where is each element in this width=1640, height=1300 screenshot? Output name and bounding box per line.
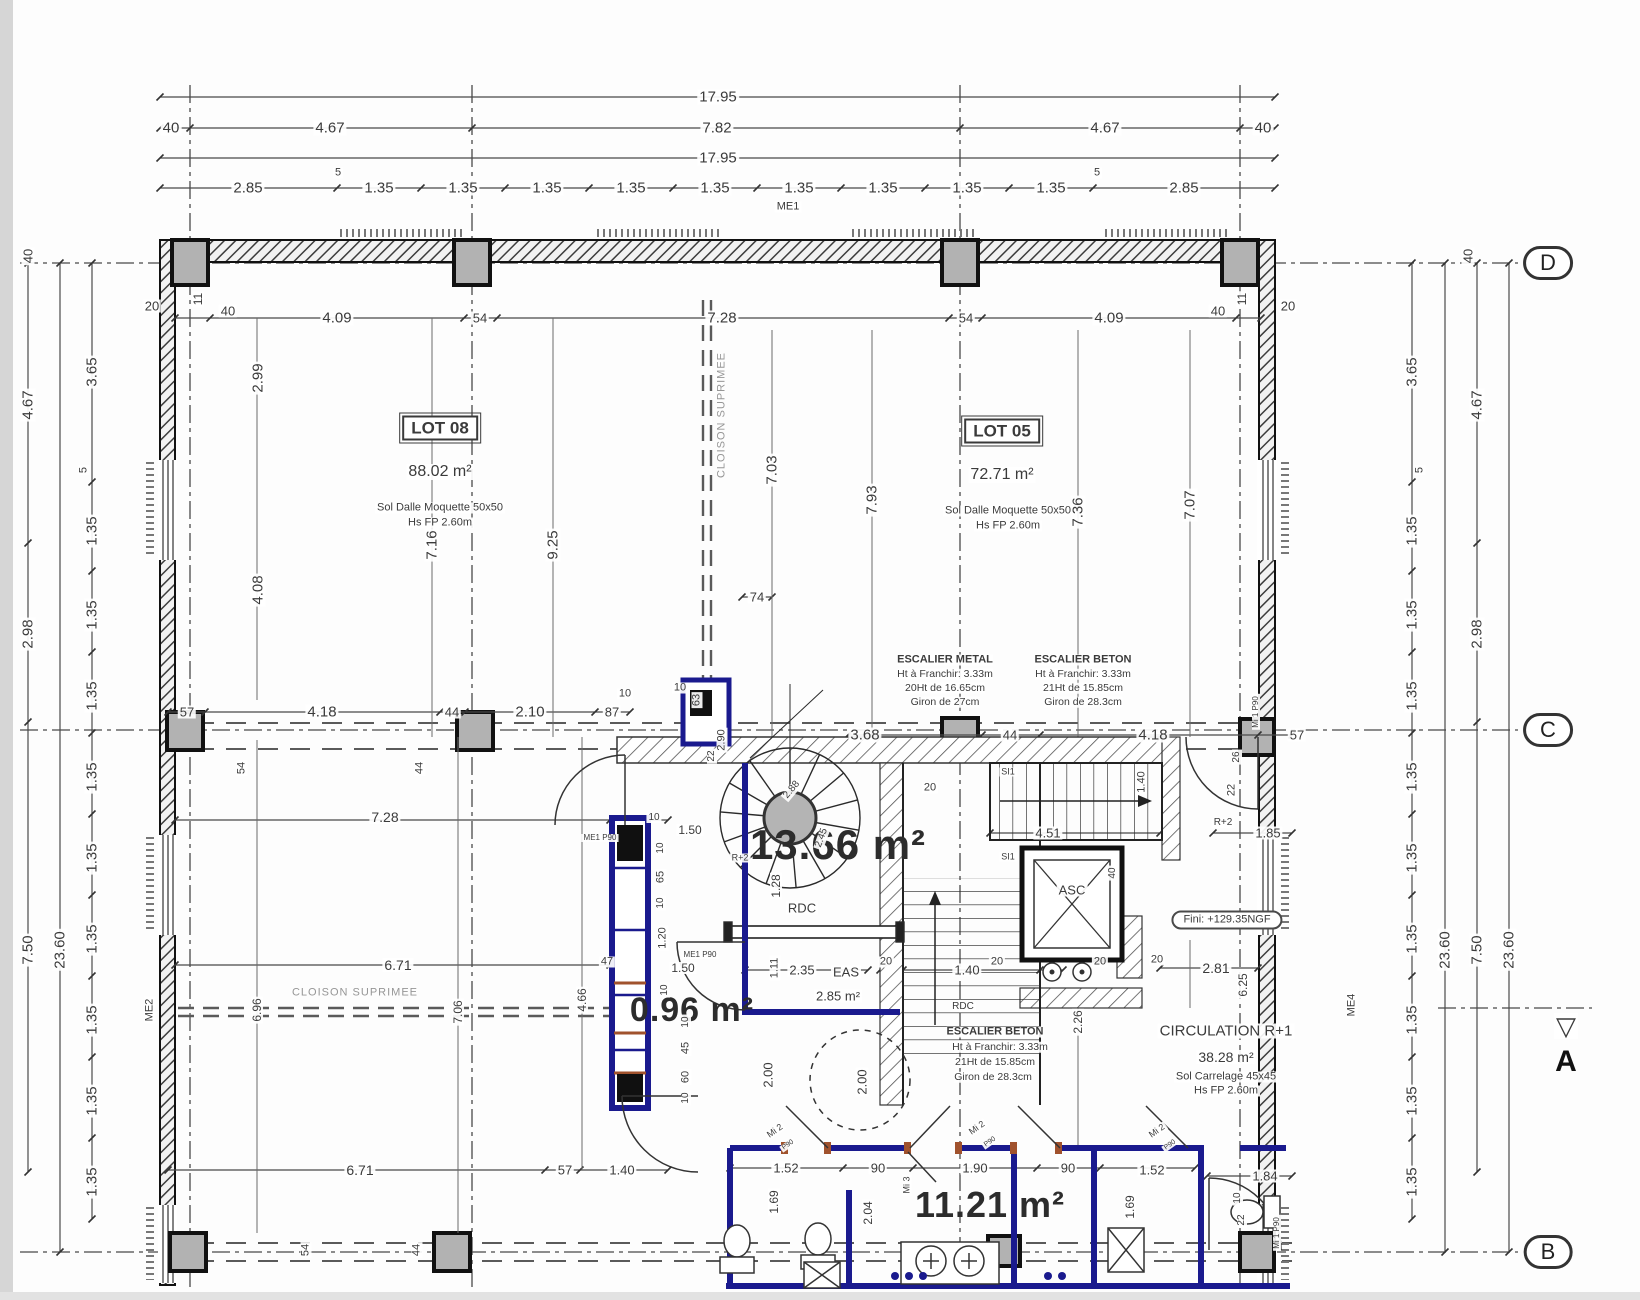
label-interior_dims-12: 2.10 <box>513 705 546 720</box>
label-corridor_dims-5: 6.71 <box>344 1163 375 1177</box>
label-annotations-7: Ht à Franchir: 3.33m <box>1035 669 1131 680</box>
label-header_dims-21: 20 <box>143 300 161 313</box>
room-lot05-area: 72.71 m² <box>968 467 1035 483</box>
label-interior_dims-54: 60 <box>681 1069 692 1085</box>
label-header_dims-19: 2.85 <box>1167 181 1200 196</box>
label-interior_dims-13: 87 <box>603 706 621 719</box>
label-annotations-5: Giron de 27cm <box>911 697 980 708</box>
label-header_dims-18: 5 <box>1092 168 1102 179</box>
label-annotations-21: ME1 P90 <box>682 951 719 959</box>
label-right_dims-16: 23.60 <box>1502 929 1517 971</box>
label-annotations-9: Giron de 28.3cm <box>1044 697 1122 708</box>
label-header_dims-26: 7.28 <box>705 311 738 326</box>
label-header_dims-22: 11 <box>192 291 204 307</box>
label-left_dims-5: 3.65 <box>85 355 100 388</box>
label-header_dims-29: 40 <box>1209 305 1227 318</box>
label-annotations-15: RDC <box>950 1002 976 1012</box>
label-left_dims-10: 1.35 <box>85 760 100 793</box>
label-annotations-13: Giron de 28.3cm <box>954 1072 1032 1083</box>
label-interior_dims-6: 7.07 <box>1183 488 1198 521</box>
label-left_dims-3: 7.50 <box>21 933 36 966</box>
label-annotations-20: ME1 P90 <box>582 834 619 842</box>
label-right_dims-4: 1.35 <box>1405 598 1420 631</box>
room-lot05-label: LOT 05 <box>964 419 1040 444</box>
label-sanitary_dims-0: 1.52 <box>771 1162 800 1175</box>
label-interior_dims-55: 10 <box>681 1014 691 1029</box>
label-interior_dims-44: 1.50 <box>676 824 703 836</box>
label-annotations-27: P90 <box>981 1134 999 1149</box>
label-annotations-18: SI1 <box>999 768 1017 777</box>
label-interior_dims-25: 2.90 <box>717 727 728 752</box>
label-header_dims-24: 4.09 <box>320 311 353 326</box>
label-header_dims-17: 1.35 <box>1034 181 1067 196</box>
label-sanitary_dims-5: 1.69 <box>768 1188 780 1215</box>
label-corridor_dims-3: 7.06 <box>452 998 464 1025</box>
grid-bubble-d: D <box>1523 246 1573 280</box>
label-left_dims-9: 1.35 <box>85 679 100 712</box>
label-right_dims-6: 1.35 <box>1405 760 1420 793</box>
label-sanitary_dims-4: 1.52 <box>1137 1164 1166 1177</box>
label-interior_dims-30: 40 <box>1108 865 1118 880</box>
label-interior_dims-19: 44 <box>1001 729 1019 742</box>
label-annotations-8: 21Ht de 15.85cm <box>1043 683 1123 694</box>
label-interior_dims-36: 1.40 <box>952 964 981 977</box>
label-annotations-29: P90 <box>1161 1137 1179 1152</box>
label-annotations-12: 21Ht de 15.85cm <box>955 1057 1035 1068</box>
label-annotations-17: R+2 <box>1212 818 1235 828</box>
label-annotations-19: SI1 <box>999 853 1017 862</box>
label-interior_dims-9: 57 <box>178 706 196 719</box>
room-lot08-area: 88.02 m² <box>406 464 473 480</box>
label-interior_dims-24: 1.85 <box>1253 827 1282 840</box>
floor-plan-canvas: 17.95404.677.824.674017.952.8551.351.351… <box>0 0 1640 1300</box>
annotation-escalier-metal: ESCALIER METAL <box>897 655 993 666</box>
label-left_dims-6: 5 <box>79 465 90 475</box>
labels-layer: 17.95404.677.824.674017.952.8551.351.351… <box>0 0 1640 1300</box>
label-interior_dims-21: 57 <box>1288 729 1306 742</box>
label-interior_dims-59: 2.00 <box>856 1067 869 1096</box>
label-interior_dims-56: 10 <box>681 1090 691 1105</box>
grid-bubble-c: C <box>1523 713 1573 747</box>
label-interior_dims-5: 7.36 <box>1071 495 1086 528</box>
label-left_dims-7: 1.35 <box>85 514 100 547</box>
label-interior_dims-51: 47 <box>599 957 615 968</box>
label-interior_dims-4: 7.93 <box>865 483 880 516</box>
label-header_dims-31: 20 <box>1279 300 1297 313</box>
level-annotation: Fini: +129.35NGF <box>1171 911 1282 930</box>
label-sanitary_dims-2: 1.90 <box>960 1162 989 1175</box>
label-interior_dims-17: 44 <box>415 760 426 776</box>
label-interior_dims-29: 1.40 <box>1137 769 1148 794</box>
label-header_dims-9: 1.35 <box>362 181 395 196</box>
label-corridor_dims-6: 57 <box>556 1164 574 1177</box>
label-header_dims-10: 1.35 <box>446 181 479 196</box>
label-right_dims-9: 1.35 <box>1405 1003 1420 1036</box>
label-header_dims-25: 54 <box>471 312 489 325</box>
room-closet-area: 0.96 m² <box>630 993 754 1027</box>
label-header_dims-27: 54 <box>957 312 975 325</box>
label-interior_dims-16: 54 <box>237 760 248 776</box>
label-annotations-28: Mi 2 <box>1146 1121 1168 1140</box>
label-right_dims-13: 2.98 <box>1470 617 1485 650</box>
label-right_dims-11: 1.35 <box>1405 1165 1420 1198</box>
label-annotations-11: Ht à Franchir: 3.33m <box>952 1042 1048 1053</box>
label-right_dims-8: 1.35 <box>1405 922 1420 955</box>
label-annotations-3: Ht à Franchir: 3.33m <box>897 669 993 680</box>
label-header_dims-5: 40 <box>1253 121 1274 136</box>
facade-label-me2: ME2 <box>145 997 156 1024</box>
room-eas-area: 2.85 m² <box>814 990 862 1003</box>
annotation-cloison-supprimee-v: CLOISON SUPRIMEE <box>717 352 728 478</box>
label-right_dims-3: 1.35 <box>1405 514 1420 547</box>
label-right_dims-7: 1.35 <box>1405 841 1420 874</box>
label-annotations-24: Mi 2 <box>764 1121 786 1140</box>
annotation-cloison-supprimee-h: CLOISON SUPRIMEE <box>292 988 418 999</box>
label-header_dims-16: 1.35 <box>950 181 983 196</box>
label-interior_dims-34: 1.11 <box>770 956 781 981</box>
room-lot08-label: LOT 08 <box>402 416 478 441</box>
grid-bubble-b: B <box>1524 1235 1573 1269</box>
label-interior_dims-38: 20 <box>989 957 1005 968</box>
section-marker-triangle-icon: ▽ <box>1554 1013 1578 1039</box>
label-interior_dims-42: 20 <box>1149 955 1165 966</box>
label-left_dims-0: 40 <box>22 247 35 265</box>
label-interior_dims-50: 1.50 <box>669 962 696 974</box>
label-header_dims-6: 17.95 <box>697 151 739 166</box>
room-sanitary-area: 11.21 m² <box>915 1187 1065 1223</box>
label-left_dims-1: 4.67 <box>21 388 36 421</box>
label-interior_dims-15: 63 <box>692 692 703 708</box>
label-right_dims-2: 5 <box>1415 465 1426 475</box>
room-circulation-area: 38.28 m² <box>1196 1050 1255 1064</box>
label-right_dims-1: 3.65 <box>1405 355 1420 388</box>
label-interior_dims-22: 26 <box>1232 749 1242 764</box>
label-interior_dims-3: 7.03 <box>765 453 780 486</box>
label-right_dims-5: 1.35 <box>1405 679 1420 712</box>
label-header_dims-7: 2.85 <box>231 181 264 196</box>
label-annotations-23: Mi 1 P90 <box>1273 1215 1281 1251</box>
label-interior_dims-8: 74 <box>748 591 766 604</box>
label-right_dims-12: 4.67 <box>1470 388 1485 421</box>
annotation-escalier-beton-mid: ESCALIER BETON <box>947 1027 1044 1038</box>
room-circulation-label: CIRCULATION R+1 <box>1158 1024 1295 1039</box>
label-interior_dims-47: 65 <box>656 869 667 885</box>
label-interior_dims-2: 9.25 <box>546 528 561 561</box>
scan-edge-left <box>0 0 13 1300</box>
label-corridor_dims-8: 54 <box>301 1242 312 1258</box>
label-header_dims-11: 1.35 <box>530 181 563 196</box>
label-right_dims-10: 1.35 <box>1405 1084 1420 1117</box>
label-interior_dims-49: 1.20 <box>658 925 669 950</box>
label-left_dims-2: 2.98 <box>21 617 36 650</box>
label-interior_dims-45: 10 <box>646 813 661 823</box>
label-interior_dims-40: 2.81 <box>1200 961 1231 975</box>
label-interior_dims-53: 45 <box>681 1040 692 1056</box>
label-annotations-4: 20Ht de 16.65cm <box>905 683 985 694</box>
label-interior_dims-0: 2.99 <box>251 361 266 394</box>
label-interior_dims-33: 1.28 <box>770 872 782 899</box>
label-header_dims-23: 40 <box>219 305 237 318</box>
room-lot08-height: Hs FP 2.60m <box>406 518 474 529</box>
facade-label-me1: ME1 <box>775 202 802 213</box>
label-corridor_dims-9: 44 <box>412 1242 423 1258</box>
label-interior_dims-41: 6.25 <box>1237 971 1249 998</box>
label-corridor_dims-0: 7.28 <box>369 810 400 824</box>
room-lot08-floor: Sol Dalle Moquette 50x50 <box>375 503 505 514</box>
label-header_dims-28: 4.09 <box>1092 311 1125 326</box>
label-interior_dims-23: 22 <box>1227 782 1238 798</box>
label-interior_dims-43: 2.26 <box>1072 1008 1084 1035</box>
label-corridor_dims-4: 4.66 <box>576 986 588 1013</box>
label-interior_dims-18: 3.68 <box>848 728 881 743</box>
label-header_dims-8: 5 <box>333 168 343 179</box>
annotation-escalier-beton-top: ESCALIER BETON <box>1035 655 1132 666</box>
label-right_dims-14: 7.50 <box>1470 933 1485 966</box>
label-header_dims-12: 1.35 <box>614 181 647 196</box>
label-interior_dims-31: 2.88 <box>781 778 804 802</box>
section-marker-a: A <box>1555 1047 1577 1077</box>
label-interior_dims-11: 44 <box>443 706 461 719</box>
label-right_dims-15: 23.60 <box>1438 929 1453 971</box>
label-sanitary_dims-10: 22 <box>1237 1212 1247 1227</box>
label-header_dims-15: 1.35 <box>866 181 899 196</box>
label-interior_dims-39: 20 <box>1092 957 1108 968</box>
label-header_dims-4: 4.67 <box>1088 121 1121 136</box>
label-sanitary_dims-1: 90 <box>869 1162 887 1175</box>
label-annotations-14: RDC <box>786 902 818 915</box>
label-interior_dims-48: 10 <box>656 895 666 910</box>
scan-edge-bottom <box>0 1292 1640 1300</box>
label-corridor_dims-2: 6.96 <box>251 996 263 1023</box>
label-interior_dims-1: 7.16 <box>425 528 440 561</box>
label-corridor_dims-7: 1.40 <box>607 1164 636 1177</box>
label-left_dims-15: 1.35 <box>85 1165 100 1198</box>
label-interior_dims-28: 4.51 <box>1033 827 1062 840</box>
room-circulation-height: Hs FP 2.60m <box>1192 1086 1260 1097</box>
label-sanitary_dims-9: 10 <box>1233 1190 1243 1205</box>
label-left_dims-8: 1.35 <box>85 598 100 631</box>
label-annotations-25: P90 <box>779 1137 797 1152</box>
room-lot05-height: Hs FP 2.60m <box>974 521 1042 532</box>
label-left_dims-13: 1.35 <box>85 1003 100 1036</box>
label-sanitary_dims-6: 1.69 <box>1124 1193 1136 1220</box>
facade-label-me4: ME4 <box>1347 992 1358 1019</box>
label-left_dims-4: 23.60 <box>53 929 68 971</box>
dim-total-top: 17.95 <box>697 90 739 105</box>
label-interior_dims-26: 22 <box>707 748 717 763</box>
elevator-label: ASC <box>1057 884 1088 897</box>
label-interior_dims-10: 4.18 <box>305 705 338 720</box>
label-interior_dims-52: 10 <box>660 982 670 997</box>
label-left_dims-14: 1.35 <box>85 1084 100 1117</box>
label-interior_dims-37: 20 <box>878 957 894 968</box>
label-header_dims-3: 7.82 <box>700 121 733 136</box>
label-left_dims-12: 1.35 <box>85 922 100 955</box>
room-circulation-floor: Sol Carrelage 45x45 <box>1174 1072 1278 1083</box>
label-annotations-26: Mi 2 <box>966 1118 988 1137</box>
label-corridor_dims-1: 6.71 <box>382 958 413 972</box>
label-interior_dims-46: 10 <box>656 840 666 855</box>
room-stairwell-area: 13.66 m² <box>750 824 926 866</box>
label-header_dims-13: 1.35 <box>698 181 731 196</box>
label-interior_dims-57: 10 <box>672 683 688 694</box>
label-interior_dims-20: 4.18 <box>1136 728 1169 743</box>
label-sanitary_dims-3: 90 <box>1059 1162 1077 1175</box>
label-interior_dims-27: 20 <box>922 783 938 794</box>
label-interior_dims-35: 2.35 <box>787 964 816 977</box>
label-header_dims-30: 11 <box>1236 291 1248 307</box>
label-header_dims-1: 40 <box>161 121 182 136</box>
label-annotations-16: R+2 <box>730 854 751 863</box>
label-header_dims-2: 4.67 <box>313 121 346 136</box>
label-interior_dims-7: 4.08 <box>251 573 266 606</box>
room-eas-label: EAS <box>831 966 861 979</box>
label-interior_dims-58: 2.00 <box>762 1060 775 1089</box>
label-right_dims-0: 40 <box>1462 247 1475 265</box>
label-sanitary_dims-7: 2.04 <box>862 1199 874 1226</box>
label-interior_dims-14: 10 <box>617 689 633 700</box>
label-left_dims-11: 1.35 <box>85 841 100 874</box>
room-lot05-floor: Sol Dalle Moquette 50x50 <box>943 506 1073 517</box>
label-annotations-22: Mi 1 P90 <box>1252 694 1260 730</box>
label-annotations-30: Mi 3 <box>903 1174 912 1195</box>
label-header_dims-14: 1.35 <box>782 181 815 196</box>
label-sanitary_dims-8: 1.84 <box>1250 1170 1279 1183</box>
